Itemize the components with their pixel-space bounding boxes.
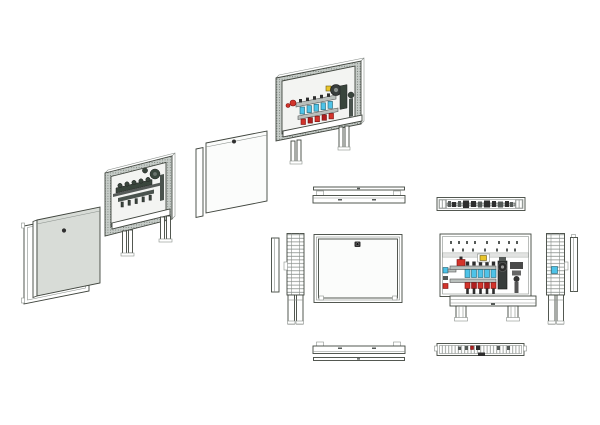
cabinet-grey-iso <box>105 153 175 256</box>
center-tab <box>478 353 485 357</box>
return-manifold-bar <box>450 279 496 283</box>
view-exploded-iso-color <box>196 58 364 218</box>
supply-connection <box>443 268 448 274</box>
lock-icon <box>232 140 236 144</box>
top-view-closed <box>313 187 405 203</box>
view-ortho-open <box>435 198 578 357</box>
legs-profile <box>548 295 564 324</box>
gauge-yellow <box>480 256 487 261</box>
side-view-closed <box>272 234 305 325</box>
supply-valve-red <box>457 260 465 267</box>
end-bracket-left <box>435 346 438 351</box>
cabinet-color-iso <box>276 58 364 164</box>
technical-drawing-canvas <box>0 0 600 425</box>
manifold-side-mark <box>552 267 558 274</box>
bottom-view-open <box>435 344 527 357</box>
bottom-view-closed <box>313 342 405 361</box>
frame-profile-hatched <box>547 234 565 296</box>
wall-clip <box>565 262 569 270</box>
front-view-closed <box>314 235 402 303</box>
door-panel-grey-iso <box>33 207 100 298</box>
supply-valve-red <box>290 100 296 106</box>
drawing-sheet <box>0 0 600 425</box>
front-view-open <box>440 234 536 321</box>
wall-clip <box>284 262 288 270</box>
flow-meters-front <box>465 270 496 278</box>
return-valves-front <box>465 283 496 289</box>
door-leaf <box>319 239 398 298</box>
side-view-open <box>547 234 578 325</box>
door-edge-profile <box>272 238 280 292</box>
pump-front <box>498 257 507 289</box>
foot-mark-right <box>393 296 398 300</box>
door-edge-profile <box>571 238 578 292</box>
supply-manifold-bar <box>450 266 496 270</box>
legs-front <box>455 306 520 321</box>
door-panel-white-iso <box>196 131 267 218</box>
return-connection <box>443 284 448 289</box>
frame-profile-hatched <box>287 234 304 296</box>
hinge-lug-bottom <box>22 298 25 303</box>
foot-mark-left <box>319 296 324 300</box>
top-view-open <box>437 198 525 211</box>
hinge-lug-top <box>22 223 25 228</box>
view-ortho-closed <box>272 187 406 361</box>
view-exploded-iso-grey <box>22 153 176 304</box>
lock-icon <box>62 228 66 232</box>
legs-profile <box>288 295 304 324</box>
end-bracket-right <box>524 346 527 351</box>
